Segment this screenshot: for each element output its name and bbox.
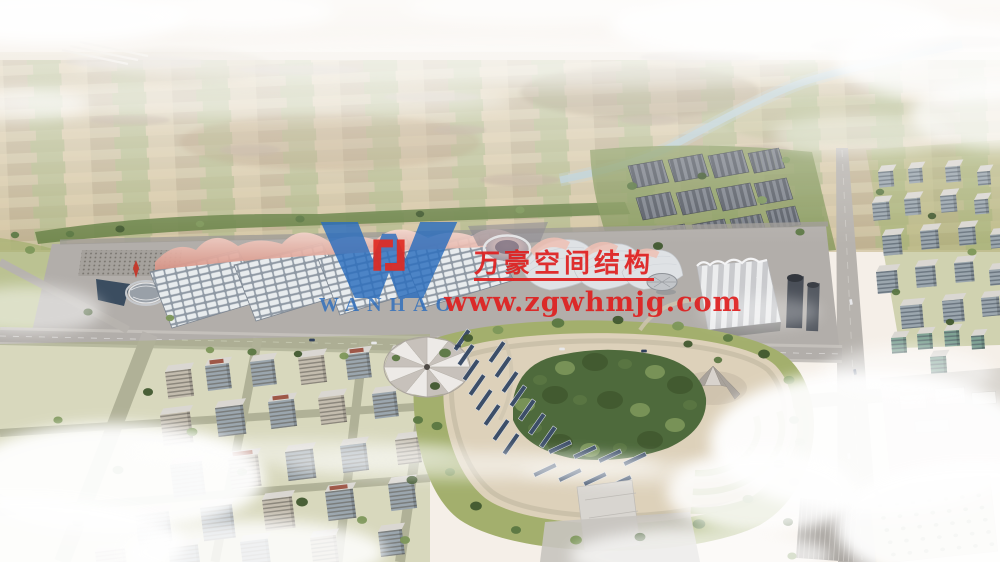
scene-canvas: [0, 0, 1000, 562]
aerial-rendering: WANHAO 万豪空间结构 www.zgwhmjg.com: [0, 0, 1000, 562]
horizon-haze: [0, 0, 1000, 245]
